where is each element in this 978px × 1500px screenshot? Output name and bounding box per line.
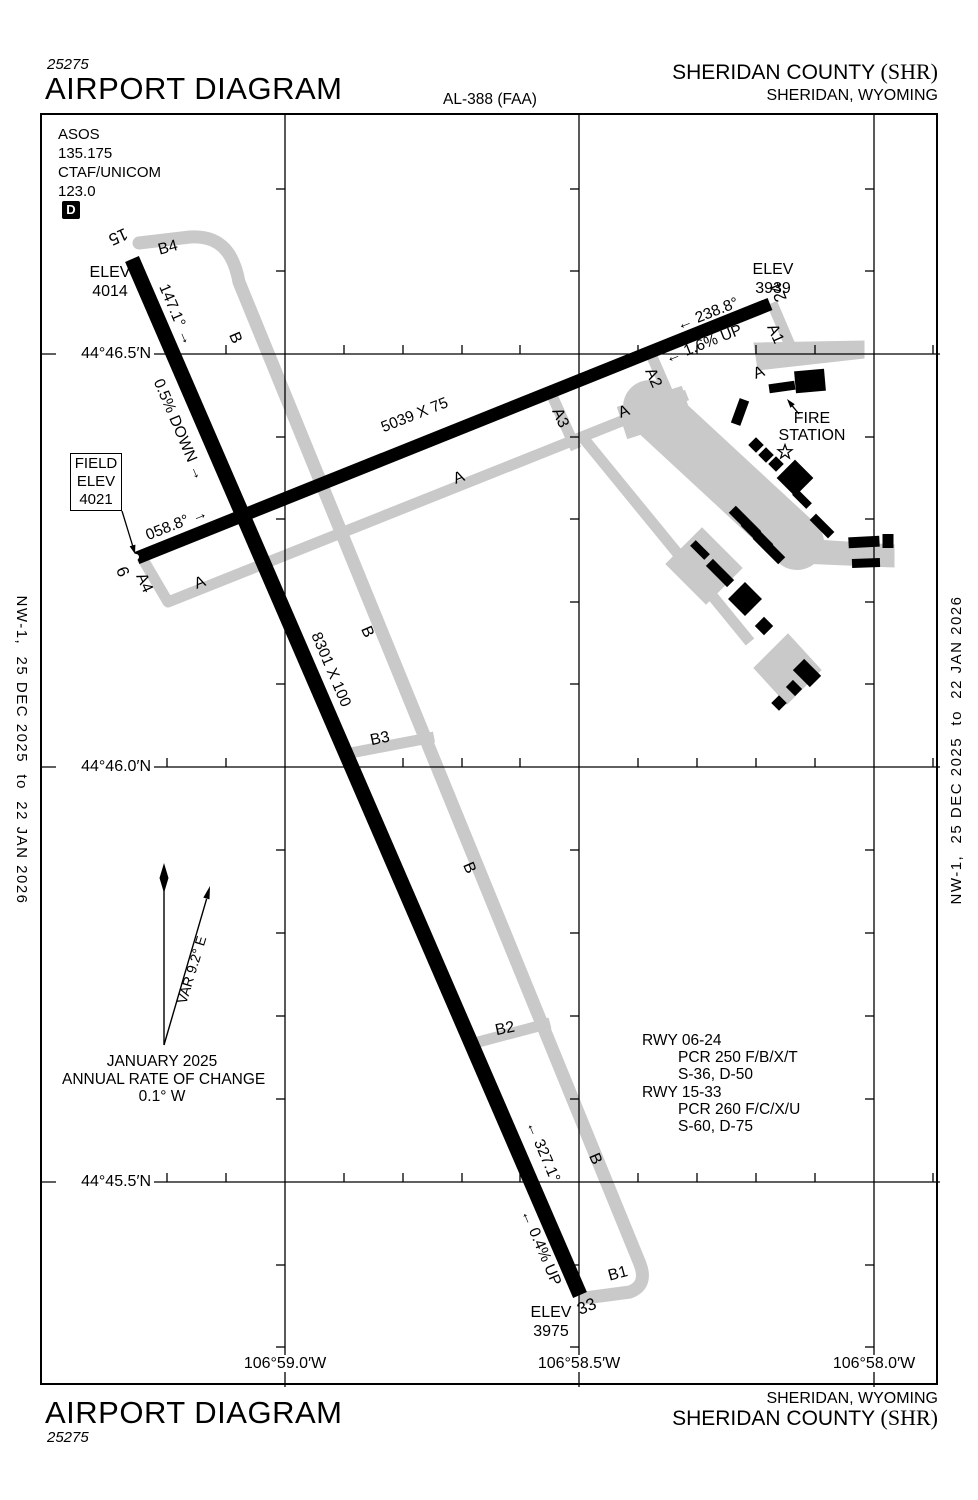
longitude-label-2: 106°58.5′W (535, 1355, 623, 1372)
elev-rwy15: ELEV 4014 (80, 263, 140, 301)
pcr-line: RWY 06-24 (642, 1032, 800, 1049)
hangar-pad-west (666, 528, 742, 604)
al-number: AL-388 (FAA) (420, 92, 560, 109)
elev-label: ELEV (520, 1303, 582, 1322)
latitude-label-3: 44°45.5′N (56, 1173, 154, 1190)
true-north-tip-icon (160, 863, 169, 893)
building (768, 456, 784, 472)
runway-15-33 (132, 259, 580, 1295)
taxiway-a (141, 395, 687, 602)
building (852, 558, 880, 568)
fire-station-arrowhead-icon (787, 399, 795, 408)
building (883, 534, 894, 548)
beacon-star-icon (778, 445, 792, 459)
airport-name-header: SHERIDAN COUNTY (SHR) (600, 60, 938, 85)
chart-code-bottom: 25275 (47, 1430, 89, 1446)
page-title: AIRPORT DIAGRAM (45, 72, 342, 105)
ctaf-label: CTAF/UNICOM (58, 163, 161, 182)
airport-name: SHERIDAN COUNTY (672, 61, 875, 84)
elev-value: 4014 (80, 282, 140, 301)
field-elev-line: FIELD (71, 455, 121, 473)
elev-value: 3975 (520, 1322, 582, 1341)
airport-diagram-map: ASOS 135.175 CTAF/UNICOM 123.0 D ELEV 40… (40, 113, 938, 1385)
edge-note-left: NW-1, 25 DEC 2025 to 22 JAN 2026 (13, 595, 29, 904)
elev-label: ELEV (742, 260, 804, 279)
comms-block: ASOS 135.175 CTAF/UNICOM 123.0 (58, 125, 161, 201)
latitude-label-1: 44°46.5′N (56, 345, 154, 362)
building (758, 447, 774, 463)
field-elev-line: ELEV (71, 473, 121, 491)
building (728, 582, 762, 616)
pcr-line: PCR 250 F/B/X/T (642, 1049, 800, 1066)
variation-date: JANUARY 2025 (62, 1053, 262, 1071)
fire-station-label: FIRE STATION (767, 410, 857, 444)
field-elev-line: 4021 (71, 491, 121, 509)
airport-name-footer: SHERIDAN COUNTY (SHR) (600, 1406, 938, 1431)
asos-frequency: 135.175 (58, 144, 161, 163)
city-state-header: SHERIDAN, WYOMING (600, 87, 938, 104)
runway-end-dot (133, 554, 139, 560)
edge-note-right: NW-1, 25 DEC 2025 to 22 JAN 2026 (949, 595, 965, 904)
field-elev-arrowhead-icon (130, 545, 136, 554)
building (848, 536, 880, 549)
building (748, 437, 764, 453)
annual-rate-block: JANUARY 2025 ANNUAL RATE OF CHANGE 0.1° … (62, 1053, 262, 1106)
field-elev-box: FIELD ELEV 4021 (70, 453, 122, 511)
asos-label: ASOS (58, 125, 161, 144)
fire-station-line: FIRE (767, 410, 857, 427)
hot-spot-d-symbol: D (62, 201, 80, 219)
elev-rwy33: ELEV 3975 (520, 1303, 582, 1341)
latitude-label-2: 44°46.0′N (56, 758, 154, 775)
pcr-line: S-60, D-75 (642, 1118, 800, 1135)
pcr-data-block: RWY 06-24 PCR 250 F/B/X/T S-36, D-50 RWY… (642, 1032, 800, 1135)
field-elev-arrow (122, 511, 133, 546)
longitude-label-1: 106°59.0′W (241, 1355, 329, 1372)
variation-rate: 0.1° W (62, 1088, 262, 1106)
variation-rate-label: ANNUAL RATE OF CHANGE (62, 1071, 262, 1089)
elev-label: ELEV (80, 263, 140, 282)
longitude-label-3: 106°58.0′W (830, 1355, 918, 1372)
pcr-line: PCR 260 F/C/X/U (642, 1101, 800, 1118)
ctaf-frequency: 123.0 (58, 182, 161, 201)
magnetic-north-tip-icon (203, 886, 210, 899)
page-title-footer: AIRPORT DIAGRAM (45, 1396, 342, 1429)
airport-name: SHERIDAN COUNTY (672, 1407, 875, 1430)
building (731, 398, 749, 426)
building (755, 617, 773, 635)
building (769, 381, 796, 394)
building (794, 369, 826, 394)
airport-id: (SHR) (881, 59, 938, 84)
pcr-line: RWY 15-33 (642, 1084, 800, 1101)
airport-id: (SHR) (881, 1405, 938, 1430)
fire-station-line: STATION (767, 427, 857, 444)
pcr-line: S-36, D-50 (642, 1066, 800, 1083)
